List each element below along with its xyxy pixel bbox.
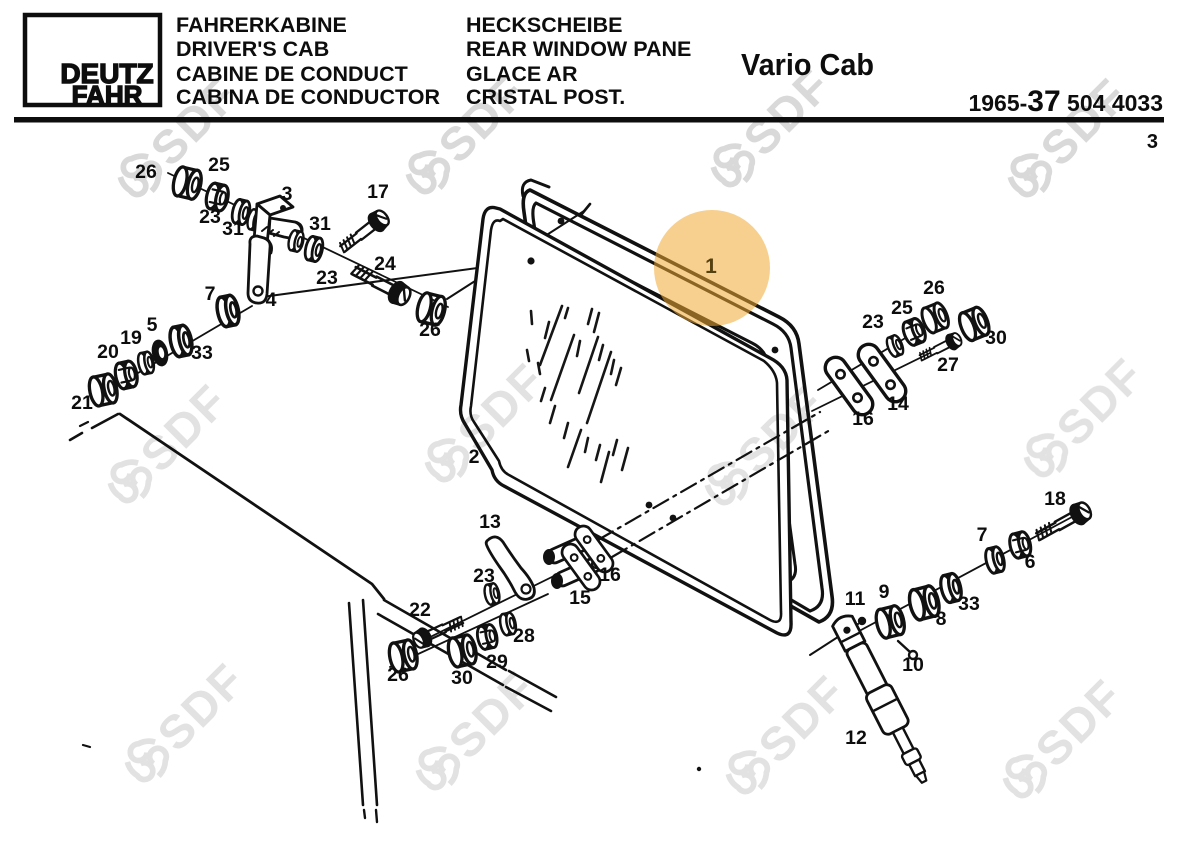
- svg-text:22: 22: [409, 599, 431, 621]
- svg-text:23: 23: [862, 311, 884, 333]
- svg-text:12: 12: [845, 727, 867, 749]
- svg-text:7: 7: [977, 524, 988, 546]
- svg-text:31: 31: [309, 213, 331, 235]
- svg-text:14: 14: [887, 393, 909, 415]
- svg-text:30: 30: [451, 667, 473, 689]
- svg-text:23: 23: [199, 206, 221, 228]
- svg-text:20: 20: [97, 341, 119, 363]
- svg-text:8: 8: [936, 608, 947, 630]
- svg-text:HECKSCHEIBE: HECKSCHEIBE: [466, 13, 623, 37]
- svg-text:16: 16: [852, 408, 874, 430]
- svg-text:19: 19: [120, 327, 142, 349]
- svg-text:26: 26: [387, 664, 409, 686]
- svg-text:26: 26: [419, 319, 441, 341]
- svg-text:25: 25: [208, 154, 230, 176]
- svg-text:24: 24: [374, 253, 396, 275]
- svg-text:10: 10: [902, 654, 924, 676]
- svg-text:17: 17: [367, 181, 389, 203]
- svg-text:33: 33: [958, 593, 980, 615]
- svg-text:33: 33: [191, 342, 213, 364]
- svg-text:4: 4: [266, 289, 277, 311]
- svg-text:3: 3: [282, 183, 293, 205]
- svg-text:13: 13: [479, 511, 501, 533]
- svg-text:FAHR: FAHR: [72, 80, 143, 110]
- svg-text:21: 21: [71, 392, 93, 414]
- svg-text:7: 7: [205, 283, 216, 305]
- svg-text:26: 26: [923, 277, 945, 299]
- svg-text:3: 3: [1147, 131, 1158, 153]
- svg-text:30: 30: [985, 327, 1007, 349]
- svg-text:15: 15: [569, 587, 591, 609]
- svg-text:18: 18: [1044, 488, 1066, 510]
- svg-text:1: 1: [705, 255, 717, 278]
- svg-text:11: 11: [845, 588, 866, 610]
- svg-text:REAR WINDOW PANE: REAR WINDOW PANE: [466, 37, 691, 61]
- svg-text:5: 5: [147, 314, 158, 336]
- svg-text:6: 6: [1025, 551, 1036, 573]
- svg-text:DRIVER'S CAB: DRIVER'S CAB: [176, 37, 329, 61]
- svg-text:23: 23: [473, 565, 495, 587]
- svg-text:27: 27: [937, 354, 959, 376]
- svg-text:28: 28: [513, 625, 535, 647]
- svg-text:25: 25: [891, 297, 913, 319]
- svg-text:23: 23: [316, 267, 338, 289]
- svg-text:9: 9: [879, 581, 890, 603]
- svg-text:31: 31: [222, 218, 244, 240]
- svg-text:16: 16: [599, 564, 621, 586]
- svg-text:FAHRERKABINE: FAHRERKABINE: [176, 13, 347, 37]
